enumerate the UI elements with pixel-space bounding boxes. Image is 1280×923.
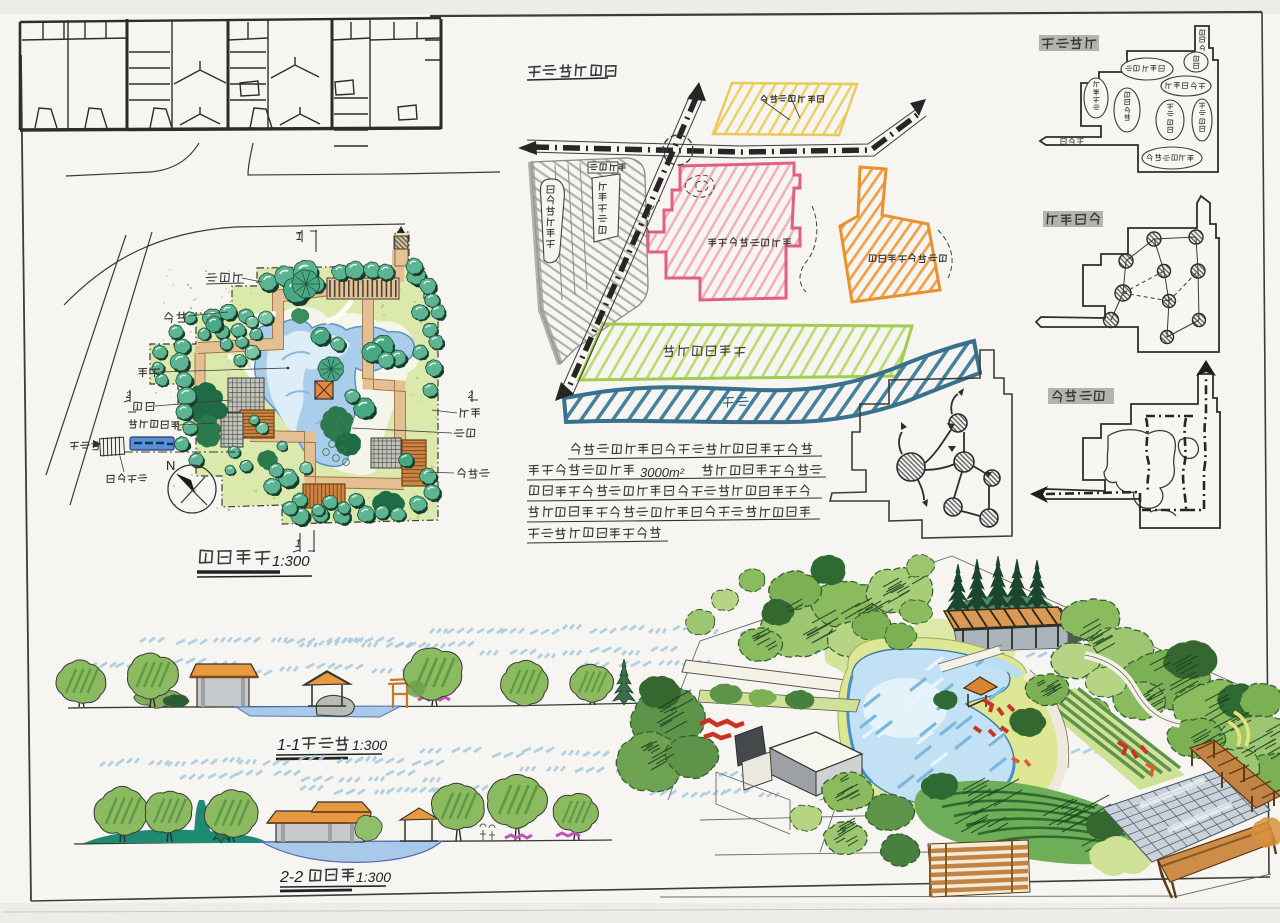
svg-text:2-2: 2-2 bbox=[279, 869, 303, 886]
svg-text:2: 2 bbox=[467, 390, 473, 400]
svg-text:1:300: 1:300 bbox=[352, 737, 387, 753]
svg-text:N: N bbox=[166, 458, 175, 473]
svg-text:1: 1 bbox=[295, 538, 301, 550]
svg-text:1: 1 bbox=[296, 231, 302, 243]
svg-text:1:300: 1:300 bbox=[356, 869, 391, 885]
svg-text:3000m²: 3000m² bbox=[640, 465, 685, 480]
svg-text:1-1: 1-1 bbox=[277, 737, 300, 754]
svg-text:1:300: 1:300 bbox=[272, 553, 310, 570]
svg-text:2: 2 bbox=[125, 390, 131, 400]
